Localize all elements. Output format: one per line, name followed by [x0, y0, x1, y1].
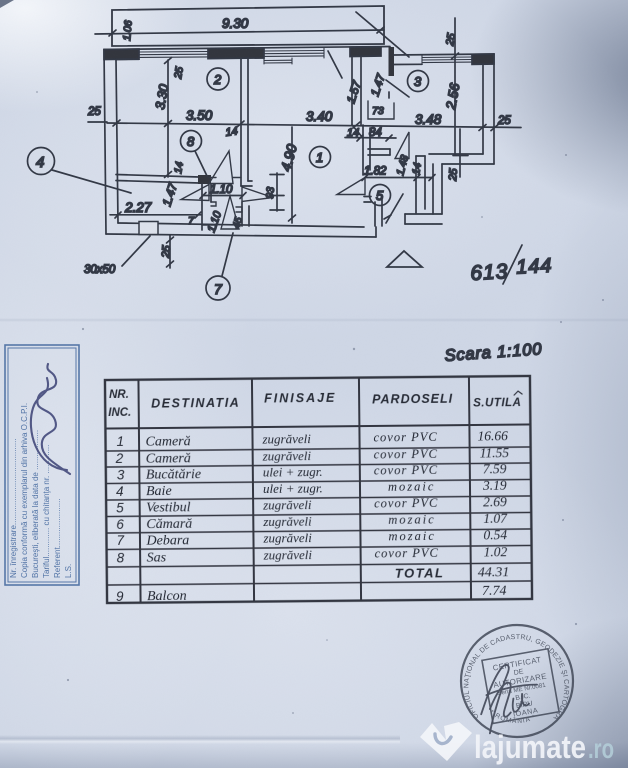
svg-text:ulei + zugr.: ulei + zugr.	[263, 464, 323, 480]
svg-text:84: 84	[369, 127, 382, 139]
svg-text:covor PVC: covor PVC	[375, 546, 439, 561]
svg-text:zugrăveli: zugrăveli	[262, 514, 312, 529]
svg-text:2.56: 2.56	[443, 82, 463, 112]
svg-text:1: 1	[116, 434, 124, 449]
svg-text:25: 25	[87, 106, 101, 118]
svg-text:3: 3	[414, 74, 422, 89]
svg-text:lajumate: lajumate	[474, 729, 586, 765]
svg-text:1.06: 1.06	[121, 20, 135, 42]
svg-text:Cămară: Cămară	[146, 517, 192, 532]
svg-text:73: 73	[372, 105, 384, 117]
svg-text:2.69: 2.69	[483, 494, 507, 509]
svg-text:TOTAL: TOTAL	[395, 565, 445, 580]
svg-text:1: 1	[316, 150, 323, 165]
svg-text:zugrăveli: zugrăveli	[263, 547, 313, 562]
svg-text:0.54: 0.54	[483, 527, 507, 542]
svg-text:8: 8	[117, 550, 125, 565]
svg-text:7: 7	[214, 281, 223, 297]
svg-text:16.66: 16.66	[477, 428, 508, 443]
svg-text:7: 7	[188, 215, 195, 227]
svg-text:.ro: .ro	[588, 733, 614, 764]
svg-text:30x50: 30x50	[84, 264, 116, 276]
svg-text:1.02: 1.02	[484, 544, 508, 559]
svg-text:mozaic: mozaic	[388, 479, 436, 493]
svg-text:3.40: 3.40	[306, 109, 333, 124]
svg-text:Scara 1:100: Scara 1:100	[444, 340, 543, 365]
svg-text:14: 14	[225, 125, 239, 139]
svg-text:1.47: 1.47	[160, 180, 181, 208]
svg-text:14: 14	[410, 162, 424, 176]
svg-text:1.82: 1.82	[364, 166, 387, 178]
svg-text:8: 8	[187, 134, 195, 149]
svg-text:Balcon: Balcon	[147, 589, 187, 604]
svg-text:zugrăveli: zugrăveli	[262, 497, 312, 512]
svg-text:44.31: 44.31	[478, 565, 510, 580]
svg-text:NR.: NR.	[109, 389, 129, 401]
svg-text:Sas: Sas	[147, 550, 167, 565]
svg-text:4.90: 4.90	[277, 142, 300, 173]
svg-text:Bucătărie: Bucătărie	[146, 467, 201, 483]
svg-text:3: 3	[117, 467, 125, 482]
svg-text:25: 25	[444, 32, 458, 48]
svg-text:25: 25	[172, 66, 186, 81]
svg-text:144: 144	[516, 255, 553, 279]
svg-text:4: 4	[116, 484, 124, 499]
svg-text:3.19: 3.19	[482, 478, 507, 493]
svg-text:2: 2	[213, 72, 222, 87]
svg-text:25: 25	[447, 167, 460, 182]
svg-text:7.59: 7.59	[483, 461, 507, 476]
svg-text:DESTINATIA: DESTINATIA	[151, 396, 240, 411]
svg-text:6: 6	[116, 517, 124, 532]
svg-text:Referent......................: Referent......................	[53, 498, 62, 578]
svg-text:Cameră: Cameră	[146, 451, 191, 466]
svg-text:9.30: 9.30	[222, 16, 249, 31]
svg-text:93: 93	[264, 186, 277, 199]
svg-text:Copia conformă cu exemplarul d: Copia conformă cu exemplarul din arhiva …	[20, 403, 29, 578]
svg-text:5: 5	[116, 500, 124, 515]
svg-text:1.10: 1.10	[206, 209, 225, 234]
svg-text:Debara: Debara	[145, 533, 189, 548]
svg-text:14: 14	[347, 127, 359, 139]
svg-text:1.47: 1.47	[369, 72, 388, 98]
svg-text:S.UTILA: S.UTILA	[473, 397, 521, 409]
svg-text:zugrăveli: zugrăveli	[261, 431, 311, 446]
svg-text:2: 2	[115, 451, 124, 466]
svg-text:Nr. înregistrare..............: Nr. înregistrare........................…	[9, 438, 18, 578]
svg-text:FINISAJE: FINISAJE	[264, 391, 336, 406]
svg-text:3.50: 3.50	[186, 108, 213, 123]
svg-text:zugrăveli: zugrăveli	[262, 448, 312, 463]
svg-text:Vestibul: Vestibul	[146, 500, 191, 515]
svg-text:Cameră: Cameră	[145, 434, 190, 449]
svg-text:1.07: 1.07	[483, 511, 508, 526]
svg-text:covor PVC: covor PVC	[374, 463, 438, 478]
svg-text:INC.: INC.	[108, 407, 131, 419]
svg-text:PARDOSELI: PARDOSELI	[372, 392, 453, 407]
svg-text:covor PVC: covor PVC	[374, 496, 438, 511]
svg-text:1.48: 1.48	[394, 154, 411, 177]
svg-text:ulei + zugr.: ulei + zugr.	[263, 480, 323, 496]
svg-text:5: 5	[376, 188, 384, 203]
svg-text:L.S.: L.S.	[64, 564, 73, 578]
svg-text:2.27: 2.27	[124, 200, 152, 215]
svg-text:25: 25	[160, 244, 173, 259]
svg-text:9: 9	[116, 589, 124, 604]
svg-text:covor PVC: covor PVC	[373, 430, 437, 445]
svg-text:14: 14	[172, 161, 186, 175]
svg-text:1.10: 1.10	[210, 184, 233, 196]
svg-text:7.74: 7.74	[482, 584, 507, 599]
svg-text:mozaic: mozaic	[388, 512, 436, 526]
svg-text:11.55: 11.55	[480, 445, 510, 460]
svg-text:3.48: 3.48	[415, 112, 442, 127]
svg-text:613: 613	[470, 260, 509, 285]
svg-text:covor PVC: covor PVC	[374, 447, 438, 462]
svg-text:zugrăveli: zugrăveli	[262, 530, 312, 545]
svg-text:4: 4	[36, 154, 44, 171]
svg-text:7: 7	[116, 533, 124, 548]
svg-text:Baie: Baie	[146, 484, 172, 499]
svg-text:mozaic: mozaic	[388, 529, 436, 543]
svg-text:25: 25	[497, 115, 511, 127]
